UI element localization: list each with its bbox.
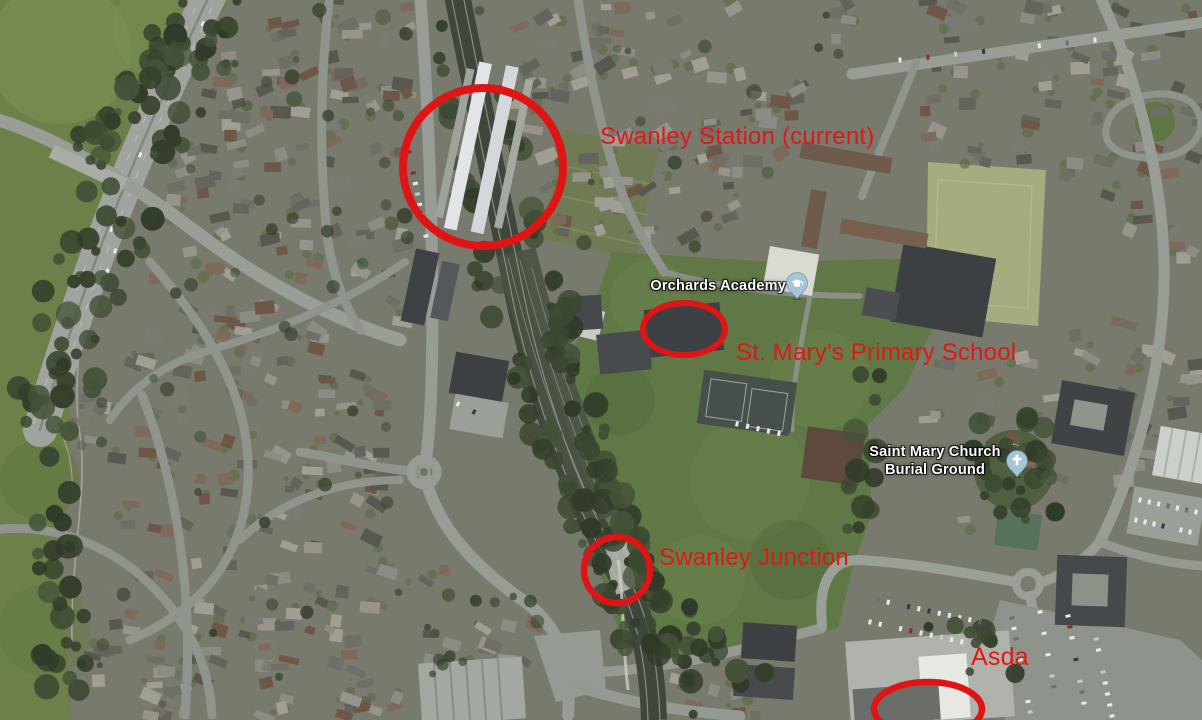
poi-label-orchards-academy[interactable]: Orchards Academy (640, 277, 786, 295)
poi-label-line1: Saint Mary Church (860, 443, 1010, 461)
poi-label-saint-mary-burial-ground[interactable]: Saint Mary Church Burial Ground (860, 443, 1010, 479)
satellite-imagery (0, 0, 1202, 720)
annotation-swanley-junction: Swanley Junction (659, 544, 849, 572)
school-pin-icon[interactable] (784, 266, 810, 300)
annotation-asda: Asda (971, 643, 1029, 672)
church-pin-icon[interactable] (1004, 444, 1030, 478)
annotation-swanley-station: Swanley Station (current) (600, 123, 874, 151)
satellite-map-canvas[interactable]: Orchards Academy Saint Mary Church Buria… (0, 0, 1202, 720)
industrial-building (418, 656, 526, 720)
annotation-st-marys-school: St. Mary's Primary School (736, 339, 1016, 367)
poi-label-line2: Burial Ground (860, 461, 1010, 479)
orchards-academy-building (644, 302, 725, 358)
